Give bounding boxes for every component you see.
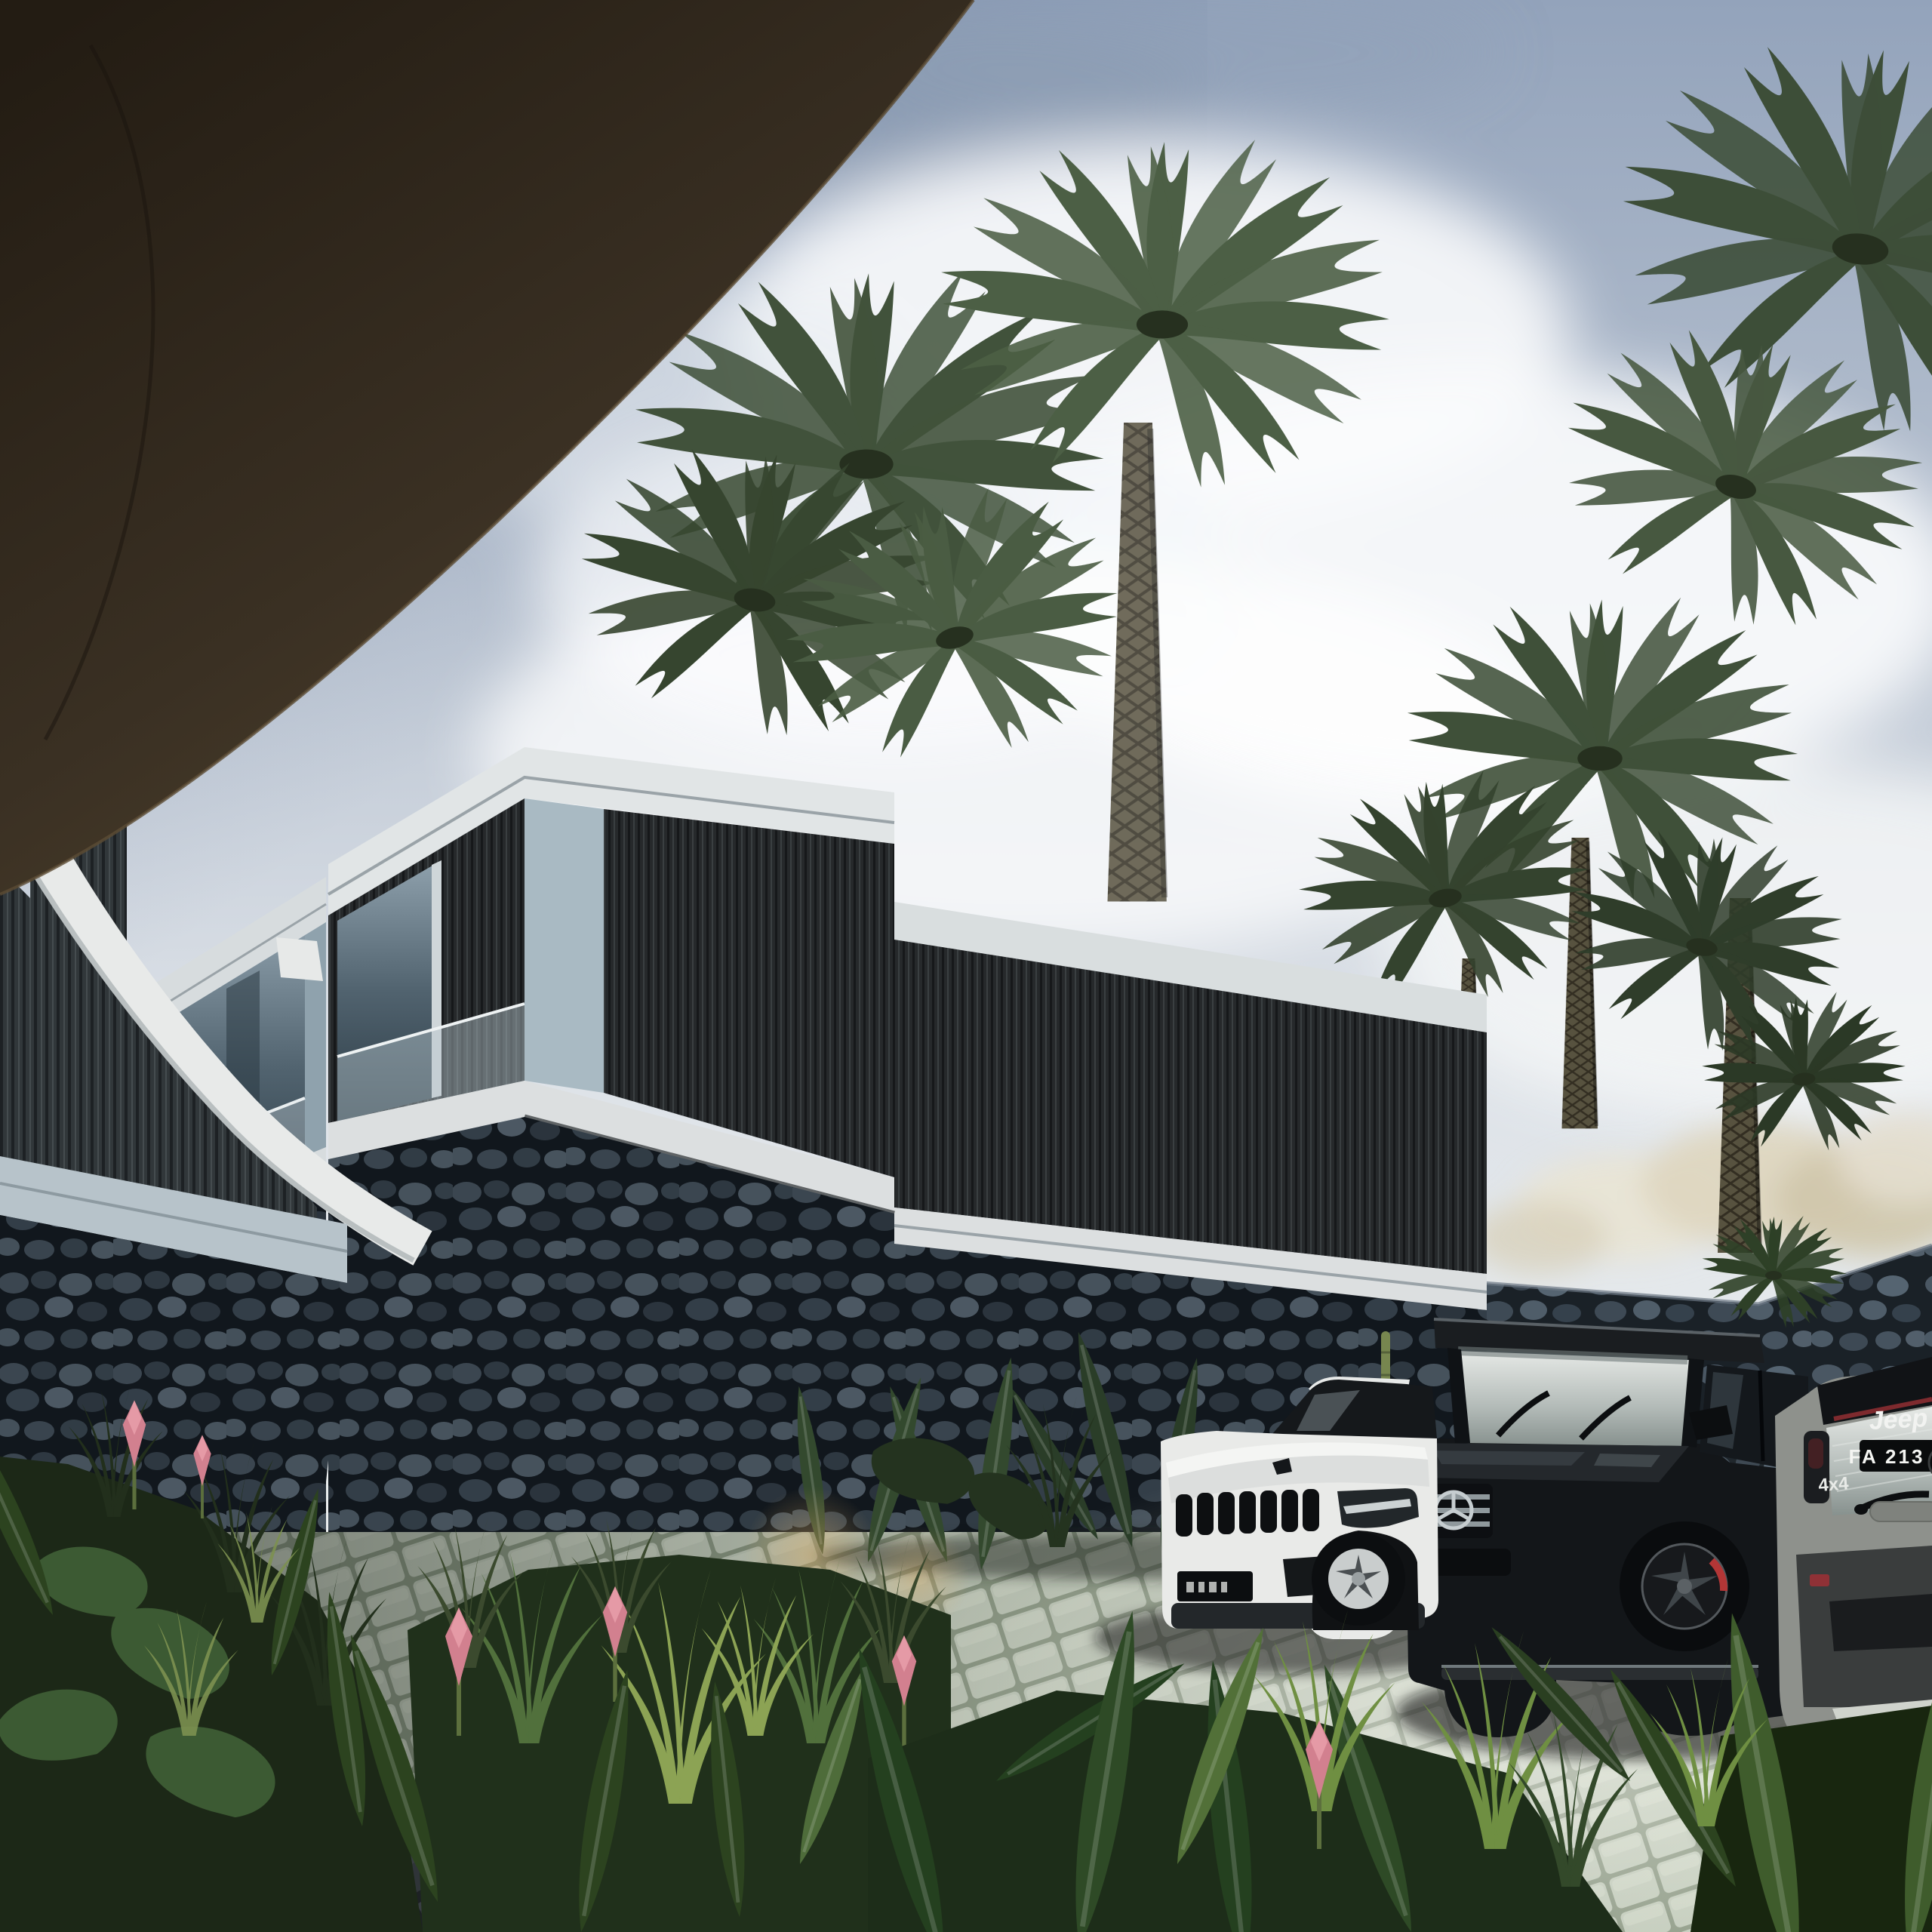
wiper-base <box>1854 1504 1868 1515</box>
hood-specular <box>1434 1451 1585 1466</box>
gray-jeep-brand-badge: Jeep <box>1869 1404 1928 1435</box>
scene-svg: Jeep FA 213 D 4x4 <box>0 0 1932 1932</box>
running-board <box>1441 1666 1758 1680</box>
tailgate-handle <box>1870 1502 1932 1521</box>
render-stage: Jeep FA 213 D 4x4 <box>0 0 1932 1932</box>
hub <box>1677 1579 1692 1594</box>
tail-light-red <box>1808 1438 1823 1469</box>
gray-jeep-license-plate-text: FA 213 D <box>1849 1445 1932 1468</box>
red-reflector <box>1810 1574 1829 1586</box>
bumper-vent <box>1829 1594 1932 1651</box>
distant-white-fragment <box>276 937 323 981</box>
corner-pier <box>525 798 604 1093</box>
g-class-windshield <box>1457 1351 1689 1446</box>
hood-specular <box>1594 1454 1660 1467</box>
gray-jeep-4x4-badge: 4x4 <box>1818 1473 1850 1496</box>
running-board-chrome <box>1441 1665 1758 1668</box>
hub <box>1352 1572 1365 1586</box>
